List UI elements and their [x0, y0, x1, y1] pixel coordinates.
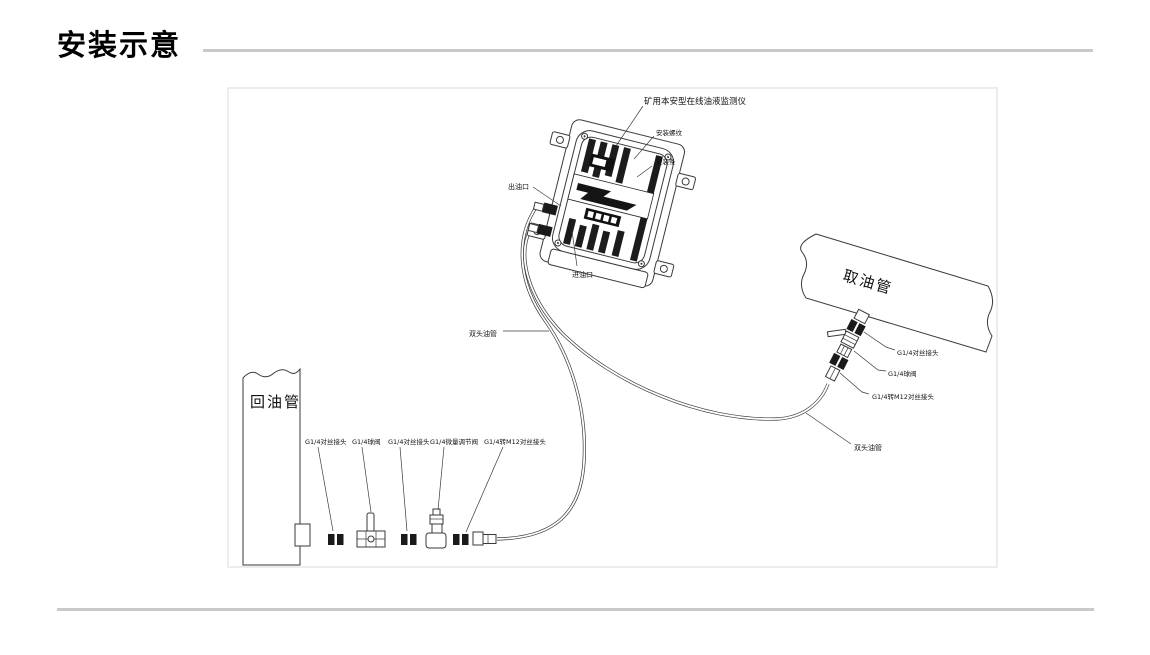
bottom-fitting-label-2: G1/4球阀 — [352, 437, 381, 446]
title-rule — [203, 49, 1093, 52]
bottom-fitting-label-4: G1/4微量调节阀 — [430, 437, 478, 446]
bottom-fitting-label-1: G1/4对丝接头 — [305, 437, 347, 446]
bottom-fitting-label-5: G1/4转M12对丝接头 — [484, 437, 546, 446]
right-fitting-label-3: G1/4转M12对丝接头 — [872, 392, 934, 401]
right-fitting-label-1: G1/4对丝接头 — [897, 348, 939, 357]
bottom-fitting-label-3: G1/4对丝接头 — [388, 437, 430, 446]
tube-label-right: 双头油管 — [854, 443, 882, 452]
oil-inlet-label: 进油口 — [572, 270, 593, 279]
device-label: 矿用本安型在线油液监测仪 — [644, 96, 747, 107]
tube-label-left: 双头油管 — [469, 329, 497, 338]
return-pipe-label: 回油管 — [250, 393, 301, 411]
right-fitting-label-2: G1/4球阀 — [888, 369, 917, 378]
mount-thread-label: 安装螺纹 — [656, 128, 683, 137]
installation-diagram: 回油管 取油管 — [0, 0, 1150, 655]
oil-outlet-label: 出油口 — [508, 182, 529, 191]
bottom-rule — [57, 608, 1094, 611]
mount-bar-label: 安装条 — [656, 157, 676, 166]
page-title: 安装示意 — [57, 22, 181, 64]
return-pipe: 回油管 — [243, 369, 310, 565]
manual-page: 安装示意 回油管 取油管 — [0, 0, 1150, 655]
